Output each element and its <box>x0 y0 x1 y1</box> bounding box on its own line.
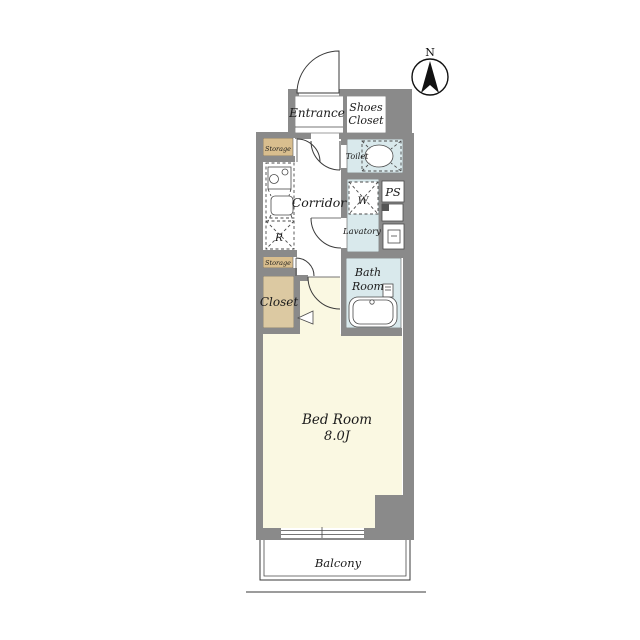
wall-segment <box>257 328 300 334</box>
bed-room-label: Bed Room <box>301 412 372 428</box>
wall-segment <box>256 250 297 257</box>
wall-segment <box>341 252 403 258</box>
kitchen-sink-icon <box>271 196 293 215</box>
compass: N <box>412 46 448 95</box>
wall-segment <box>257 268 297 276</box>
storage-upper-label: Storage <box>265 145 291 153</box>
pipe-space-label: PS <box>384 185 401 199</box>
washing-machine-label: W <box>358 195 370 207</box>
wall-segment <box>341 328 402 336</box>
refrigerator-label: R <box>274 232 283 244</box>
bath-heater-icon <box>383 284 393 297</box>
wall-segment <box>341 258 346 336</box>
entrance-door-swing <box>297 51 339 93</box>
wall-segment-left-outer <box>256 132 263 540</box>
bath-room-label-line1: Bath <box>354 266 381 279</box>
wall-segment <box>256 132 295 138</box>
lavatory-label: Lavatory <box>342 227 381 237</box>
wall-segment <box>341 139 347 145</box>
wall-segment <box>341 173 403 179</box>
bed-room-size-label: 8.0J <box>324 429 351 444</box>
bath-room-label-line2: Room <box>351 280 384 293</box>
shoes-closet-label-line1: Shoes <box>349 101 383 114</box>
wall-segment <box>339 133 403 139</box>
wall-segment <box>386 89 412 133</box>
shoes-closet-label-line2: Closet <box>348 114 384 127</box>
bathtub-drain-icon <box>370 300 374 304</box>
balcony-label: Balcony <box>314 556 362 570</box>
bedroom-floor-strip <box>300 277 340 336</box>
closet-label: Closet <box>260 295 299 309</box>
wash-basin-icon <box>388 230 400 243</box>
toilet-label: Toilet <box>346 152 369 161</box>
wall-segment <box>263 156 295 162</box>
meter-box-dark-square <box>382 204 389 211</box>
window-opening <box>281 528 364 538</box>
toilet-bowl-icon <box>365 145 393 167</box>
floor-plan-drawing: N Entrance Shoes Closet Toilet Corridor … <box>0 0 640 640</box>
floor-plan-page: N Entrance Shoes Closet Toilet Corridor … <box>0 0 640 640</box>
bedroom-floor-lower <box>263 497 375 528</box>
corridor-label: Corridor <box>292 195 348 210</box>
north-label: N <box>425 46 435 59</box>
wall-segment <box>295 133 311 139</box>
wall-segment-right-outer <box>403 133 414 497</box>
storage-lower-label: Storage <box>265 259 291 267</box>
entrance-label: Entrance <box>288 106 345 120</box>
